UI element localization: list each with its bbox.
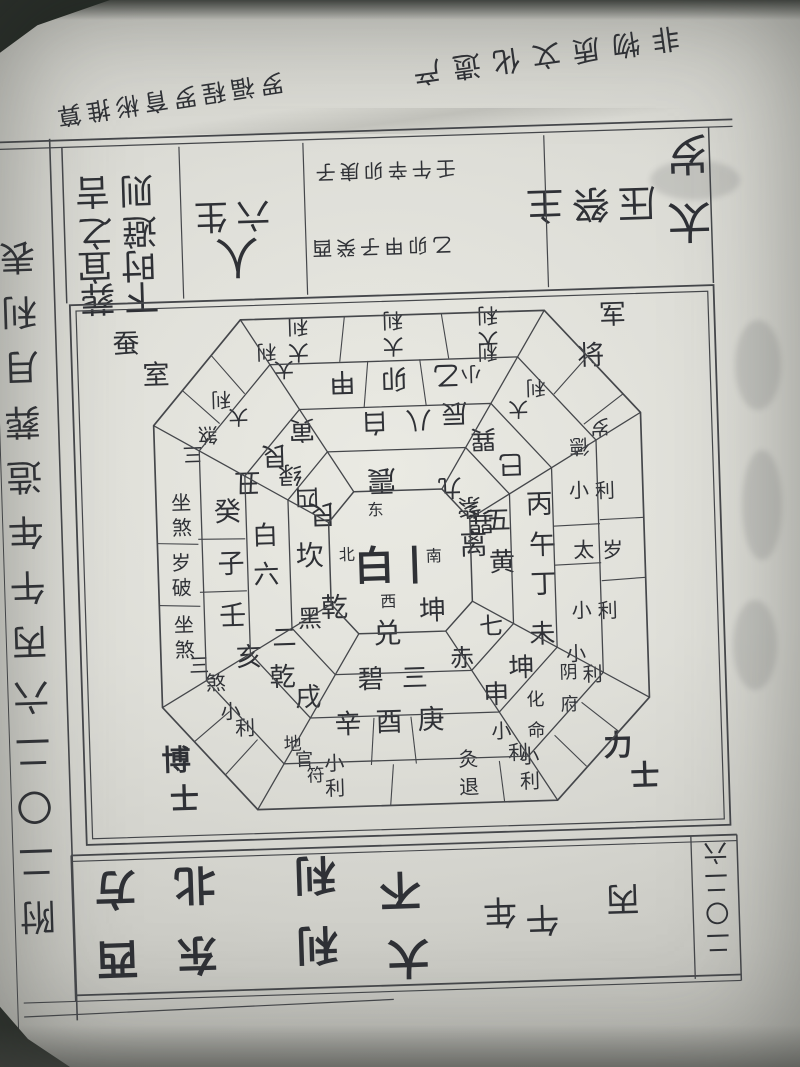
taboo_band-persons_big: 人	[215, 230, 261, 282]
page-heritage: 质	[570, 31, 602, 67]
chart-corners-top_right: 将	[577, 340, 605, 372]
taboo_band-ganzhi_row1: 卯	[363, 158, 384, 183]
chart-sectors-xun_se-band-1: 大	[508, 397, 529, 422]
side_strip-text: 利	[0, 290, 37, 332]
ink-bleedthrough	[733, 600, 777, 690]
chart-center-dir_west: 西	[380, 592, 397, 611]
page-top-shadow	[0, 0, 800, 20]
page-heritage: 化	[490, 42, 522, 78]
chart-corners-bottom_left: 士	[169, 781, 199, 816]
chart-sectors-gen_ne-mountains: 丑	[234, 466, 261, 497]
chart-sectors-kan_n-mountains: 子	[217, 548, 245, 580]
taboo_band-ganzhi_row1: 子	[315, 160, 336, 185]
chart-sectors-qian_nw-mountains: 亥	[236, 642, 263, 673]
chart-sectors-gen_ne-band-2: 利	[256, 340, 277, 365]
chart-sectors-zhen_e-band-1: 大	[382, 334, 404, 359]
chart-center-star: 白	[353, 543, 394, 590]
chart-sectors-kan_n-band-2: 坐	[174, 613, 195, 638]
side_strip-text: 表	[0, 235, 36, 277]
chart-sectors-li_s-band-2: 利	[597, 598, 618, 623]
chart-sectors-kan_n-star: 白	[252, 521, 279, 552]
year_band-unfavorable: 不	[379, 865, 423, 915]
chart-sectors-gen_ne-band-1: 利	[210, 387, 231, 412]
side_strip-text: 丙	[11, 620, 48, 662]
chart-sectors-dui_w-mountains: 酉	[375, 707, 403, 739]
taboo_band-ganzhi_row1: 庚	[339, 159, 360, 184]
taboo_band-ganzhi_row2: 乙	[432, 232, 453, 257]
side_strip-text: 造	[6, 455, 43, 497]
ink-bleedthrough	[650, 160, 740, 200]
chart-corners-bottom_right: 士	[630, 758, 660, 793]
chart-sectors-li_s-trigram: 离	[459, 528, 488, 562]
chart-sectors-dui_w-star: 三	[401, 663, 428, 694]
chart-sectors-kun_sw-band-1: 府	[560, 694, 579, 716]
taboo_band-ganzhi_row1: 午	[411, 157, 432, 182]
chart-sectors-xun_se-mountains: 巽	[470, 423, 497, 454]
side_strip-text: 二	[14, 730, 51, 772]
chart-sectors-dui_w-band-0: 小	[324, 751, 345, 776]
chart-sectors-zhen_e-mountains: 卯	[380, 362, 408, 394]
side_strip-text: 月	[2, 345, 39, 387]
chart-sectors-li_s-star: 五	[484, 506, 511, 537]
chart-sectors-qian_nw-band-2: 符	[306, 765, 325, 787]
taboo_band-press: 祭	[571, 181, 610, 226]
page-credit: 罗	[257, 68, 285, 99]
chart-sectors-qian_nw-star: 黑	[297, 604, 322, 633]
side_strip-text: 二	[18, 840, 55, 882]
taboo_band-ganzhi_row2: 卯	[408, 233, 429, 258]
page-credit: 福	[229, 72, 257, 103]
chart-center-dir_south: 南	[426, 546, 443, 565]
chart-sectors-li_s-mountains: 丙	[525, 489, 553, 521]
chart-sectors-zhen_e-band-1: 利	[382, 308, 404, 333]
chart-sectors-qian_nw-band-1: 利	[235, 716, 256, 741]
taboo_band-avoid_line2: 吉	[74, 170, 110, 211]
ink-bleedthrough	[742, 450, 782, 560]
chart-sectors-kan_n-mountains: 癸	[213, 496, 241, 528]
chart-sectors-kun_sw-trigram: 坤	[419, 595, 447, 627]
side_strip-text: 年	[7, 510, 44, 552]
year_band-unfavorable_dirs: 北	[173, 859, 217, 909]
taboo_band-persons_small: 生	[193, 195, 228, 236]
year_band-unfavorable-b: 利	[293, 850, 337, 900]
page-credit: 算	[55, 99, 83, 130]
chart-sectors-gen_ne-band-0: 煞	[198, 423, 219, 448]
chart-sectors-dui_w-star: 碧	[357, 665, 384, 696]
year_band-year: 〇	[705, 898, 730, 927]
year_band-year: 二	[704, 868, 729, 897]
chart-sectors-kan_n-band-1: 岁	[171, 551, 192, 576]
page-heritage: 遗	[450, 48, 482, 84]
chart-sectors-li_s-mountains: 午	[529, 530, 557, 562]
side_strip-text: 六	[12, 675, 49, 717]
chart-corners-bottom_left: 博	[161, 743, 191, 778]
side_strip-text: 〇	[16, 785, 53, 827]
page-heritage: 非	[650, 21, 682, 57]
chart-sectors-qian_nw-mountains: 戌	[295, 683, 322, 714]
taboo_band-avoid_line2: 则	[118, 169, 154, 210]
year_band-year: 六	[703, 838, 728, 867]
taboo_band-press: 压	[617, 180, 656, 225]
page-credit: 推	[84, 94, 112, 125]
page-bottom-shadow	[0, 1025, 800, 1067]
chart-sectors-kan_n-mountains: 壬	[219, 600, 247, 632]
taboo_band-ganzhi_row1: 壬	[435, 156, 456, 181]
chart-sectors-kun_sw-band-2: 化	[526, 689, 545, 711]
chart-sectors-dui_w-band-2: 利	[520, 769, 541, 794]
year_band-favorable-b: 利	[295, 920, 339, 970]
taboo_band-taisui: 太	[667, 195, 713, 247]
side_strip-text: 午	[9, 565, 46, 607]
page-credit: 程	[200, 77, 228, 108]
chart-corners-top_left: 室	[142, 360, 170, 392]
page-credit: 彬	[113, 90, 141, 121]
chart-sectors-zhen_e-trigram: 震	[366, 463, 396, 498]
chart-sectors-xun_se-mountains: 巳	[498, 448, 525, 479]
chart-sectors-kan_n-star: 六	[253, 560, 280, 591]
chart-sectors-li_s-band-0: 小	[569, 478, 590, 503]
chart-sectors-zhen_e-star: 白	[361, 406, 388, 437]
chart-sectors-dui_w-mountains: 庚	[417, 704, 445, 736]
year_band-ganzhi_year: 午	[525, 898, 560, 939]
year_band-favorable: 大	[387, 933, 431, 983]
chart-sectors-zhen_e-star: 八	[405, 404, 432, 435]
chart-sectors-xun_se-band-2: 岁	[590, 414, 611, 439]
chart-sectors-kan_n-band-1: 破	[171, 576, 192, 601]
chart-sectors-kun_sw-band-0: 利	[582, 662, 603, 687]
chart-center-dir_north: 北	[339, 545, 356, 564]
taboo_band-ganzhi_row1: 辛	[387, 158, 408, 183]
chart-sectors-li_s-band-2: 小	[571, 598, 592, 623]
chart-sectors-zhen_e-mountains: 甲	[328, 366, 356, 398]
chart-sectors-kan_n-trigram: 坎	[295, 539, 324, 573]
chart-sectors-dui_w-band-0: 利	[325, 776, 346, 801]
chart-sectors-kun_sw-band-3: 小	[491, 719, 512, 744]
page-credit: 罗	[171, 81, 199, 112]
taboo_band-burial_line1: 葬	[79, 277, 115, 318]
taboo_band-persons_small: 六	[235, 194, 270, 235]
taboo_band-ganzhi_row2: 子	[360, 234, 381, 259]
ink-bleedthrough	[735, 320, 781, 410]
chart-sectors-li_s-band-1: 岁	[602, 538, 624, 563]
year_band-ganzhi_year: 丙	[605, 878, 640, 919]
year_band-favorable_dirs: 东	[176, 929, 220, 979]
chart-sectors-zhen_e-band-2: 利	[476, 303, 498, 328]
year_band-ganzhi_year: 年	[482, 891, 517, 932]
year_band-favorable_dirs: 西	[96, 934, 140, 984]
chart-sectors-li_s-band-1: 太	[573, 538, 595, 563]
chart-sectors-li_s-mountains: 丁	[530, 569, 558, 601]
chart-sectors-zhen_e-mountains: 乙	[432, 359, 460, 391]
side_strip-text: 葬	[4, 400, 41, 442]
chart-sectors-xun_se-band-1: 利	[525, 375, 546, 400]
page-credit: 育	[142, 86, 170, 117]
chart-corners-top_left: 蚕	[112, 329, 140, 361]
chart-sectors-gen_ne-star: 绿	[278, 460, 303, 489]
page-heritage: 物	[610, 26, 642, 62]
page-heritage: 文	[530, 37, 562, 73]
side_strip-text: 附	[19, 894, 56, 936]
chart-sectors-dui_w-band-1: 灸	[458, 747, 479, 772]
chart-sectors-dui_w-mountains: 辛	[334, 709, 362, 741]
chart-center-dir_east: 东	[367, 500, 384, 519]
chart-sectors-kan_n-band-0: 坐	[171, 491, 192, 516]
year_band-year: 二	[706, 928, 731, 957]
chart-sectors-xun_se-band-0: 利	[477, 340, 498, 365]
taboo_band-burial_line1: 下	[123, 275, 159, 316]
year_band-unfavorable_dirs: 方	[93, 864, 137, 914]
taboo_band-ganzhi_row2: 甲	[384, 234, 405, 259]
taboo_band-ganzhi_row2: 癸	[336, 235, 357, 260]
chart-sectors-kun_sw-band-2: 命	[527, 720, 546, 742]
taboo_band-ganzhi_row2: 酉	[312, 236, 333, 261]
chart-corners-top_right: 军	[598, 299, 626, 331]
chart-sectors-xun_se-mountains: 辰	[441, 397, 468, 428]
chart-sectors-kan_n-band-0: 煞	[172, 516, 193, 541]
chart-sectors-kun_sw-band-1: 阴	[559, 662, 578, 684]
chart-sectors-dui_w-band-1: 退	[459, 775, 480, 800]
newspaper-photo: 算推彬育罗程福罗产遗化文质物非吉则之避宜时葬下生六人子庚卯辛午壬酉癸子甲卯乙主祭…	[0, 0, 800, 1067]
page-heritage: 产	[411, 53, 443, 89]
chart-sectors-kun_sw-mountains: 坤	[508, 653, 535, 684]
